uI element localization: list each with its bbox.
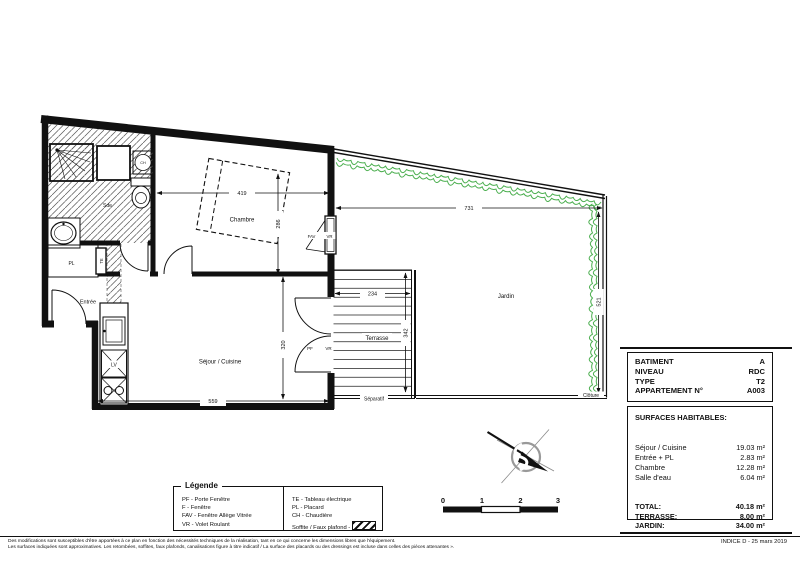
terrasse-row: TERRASSE:8.00 m² xyxy=(635,512,765,522)
legend-box: Légende PF - Porte Fenêtre F - Fenêtre F… xyxy=(173,486,383,531)
scale-tick-1: 1 xyxy=(480,496,484,505)
label-vr-sejour: VR xyxy=(325,346,332,351)
scale-tick-3: 3 xyxy=(556,496,560,505)
jardin-row: JARDIN:34.00 m² xyxy=(635,521,765,531)
entry-door xyxy=(52,290,86,324)
label-ch: CH xyxy=(140,161,146,165)
shower xyxy=(50,144,93,181)
porte-fenetre xyxy=(295,298,331,372)
appartement-value: A003 xyxy=(747,386,765,396)
label-jardin: Jardin xyxy=(498,294,514,300)
batiment-value: A xyxy=(760,357,765,367)
surfaces-table: SURFACES HABITABLES: Séjour / Cuisine19.… xyxy=(627,406,773,520)
terrasse-decking xyxy=(334,271,412,387)
hedge-line xyxy=(336,162,600,209)
legend-item-soffite: Soffite / Faux plafond - xyxy=(292,521,382,532)
dim-sejour-width: 559 xyxy=(208,399,217,405)
scale-tick-2: 2 xyxy=(518,496,522,505)
title-block-top-rule xyxy=(620,347,792,349)
label-terrasse: Terrasse xyxy=(365,336,389,342)
legend-title: Légende xyxy=(181,481,222,490)
washbasin xyxy=(48,218,80,248)
sde-door xyxy=(120,243,148,271)
surface-row: Salle d'eau6.04 m² xyxy=(635,473,765,483)
legend-item-vr: VR - Volet Roulant xyxy=(182,521,283,529)
hedge xyxy=(336,158,601,392)
dim-terrasse-width: 234 xyxy=(368,292,377,298)
label-pl: PL xyxy=(68,261,74,267)
legend-item-pl: PL - Placard xyxy=(292,504,382,512)
label-separatif: Séparatif xyxy=(364,397,385,403)
label-sde: Sde xyxy=(103,203,112,209)
label-sejour: Séjour / Cuisine xyxy=(199,360,242,366)
soffite-hatch-swatch xyxy=(352,521,376,530)
chambre-door xyxy=(164,246,192,274)
niveau-label: NIVEAU xyxy=(635,367,664,377)
legend-item-f: F - Fenêtre xyxy=(182,504,283,512)
dim-chambre-width: 419 xyxy=(237,191,246,197)
dim-chambre-height: 286 xyxy=(276,219,282,228)
dim-jardin-width: 731 xyxy=(464,206,473,212)
legend-item-te: TE - Tableau électrique xyxy=(292,496,382,504)
label-cloture: Clôture xyxy=(583,393,599,399)
label-pf: PF xyxy=(307,346,313,351)
surfaces-title: SURFACES HABITABLES: xyxy=(635,413,765,422)
kitchen-counter xyxy=(100,303,128,405)
wc xyxy=(131,178,151,208)
appartement-label: APPARTEMENT N° xyxy=(635,386,703,396)
label-fav: FAV xyxy=(308,234,316,239)
dim-jardin-height: 521 xyxy=(597,297,603,306)
niveau-value: RDC xyxy=(749,367,765,377)
label-vr-chambre: VR xyxy=(327,234,333,239)
title-block-bottom-rule xyxy=(620,532,792,534)
legend-item-pf: PF - Porte Fenêtre xyxy=(182,496,283,504)
scale-tick-0: 0 xyxy=(441,496,445,505)
dim-terrasse-height: 342 xyxy=(404,328,410,337)
apartment-identity: BATIMENTA NIVEAURDC TYPET2 APPARTEMENT N… xyxy=(627,352,773,402)
dim-sejour-height: 320 xyxy=(281,340,287,349)
surface-row: Séjour / Cuisine19.03 m² xyxy=(635,443,765,453)
surface-row: Chambre12.28 m² xyxy=(635,463,765,473)
footer-notes: Des modifications sont susceptibles d'êt… xyxy=(8,539,568,551)
title-block: BATIMENTA NIVEAURDC TYPET2 APPARTEMENT N… xyxy=(627,352,773,520)
label-lv: LV xyxy=(111,363,117,369)
surface-row: Entrée + PL2.83 m² xyxy=(635,453,765,463)
batiment-label: BATIMENT xyxy=(635,357,674,367)
type-label: TYPE xyxy=(635,377,655,387)
label-chambre: Chambre xyxy=(230,218,255,224)
legend-item-fav: FAV - Fenêtre Allège Vitrée xyxy=(182,512,283,520)
total-row: TOTAL:40.18 m² xyxy=(635,502,765,512)
washing-machine xyxy=(97,146,130,180)
footer-line2: Les surfaces indiquées sont approximativ… xyxy=(8,545,568,551)
footer-rule xyxy=(0,536,800,537)
hedge-line xyxy=(589,204,593,392)
revision-indice: INDICE D - 25 mars 2019 xyxy=(721,539,787,545)
label-te: TE xyxy=(99,258,104,264)
dimensions: 419 286 559 320 234 342 731 521 xyxy=(98,174,604,406)
legend-item-ch: CH - Chaudière xyxy=(292,512,382,520)
north-arrow xyxy=(488,430,555,484)
scale-bar: 0 1 2 3 xyxy=(441,496,560,513)
hedge-line xyxy=(337,158,601,205)
label-entree: Entrée xyxy=(80,300,96,306)
type-value: T2 xyxy=(756,377,765,387)
